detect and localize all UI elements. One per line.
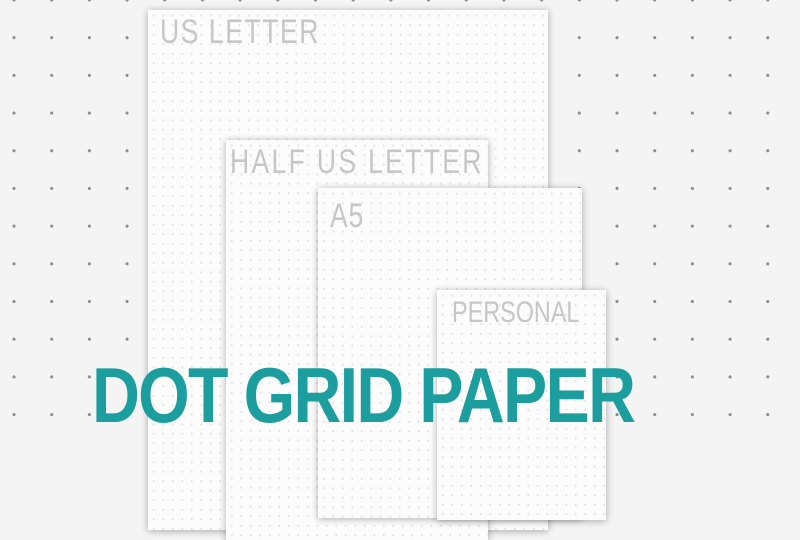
sheet-label-us-letter: US LETTER: [160, 10, 320, 54]
sheet-label-personal: PERSONAL: [452, 294, 579, 332]
hero-title: DOT GRID PAPER: [92, 350, 634, 440]
dot-grid-paper-graphic: { "title": { "text": "DOT GRID PAPER", "…: [0, 0, 800, 445]
sheet-label-a5: A5: [330, 194, 364, 238]
sheet-label-half-us-letter: HALF US LETTER: [230, 140, 484, 184]
